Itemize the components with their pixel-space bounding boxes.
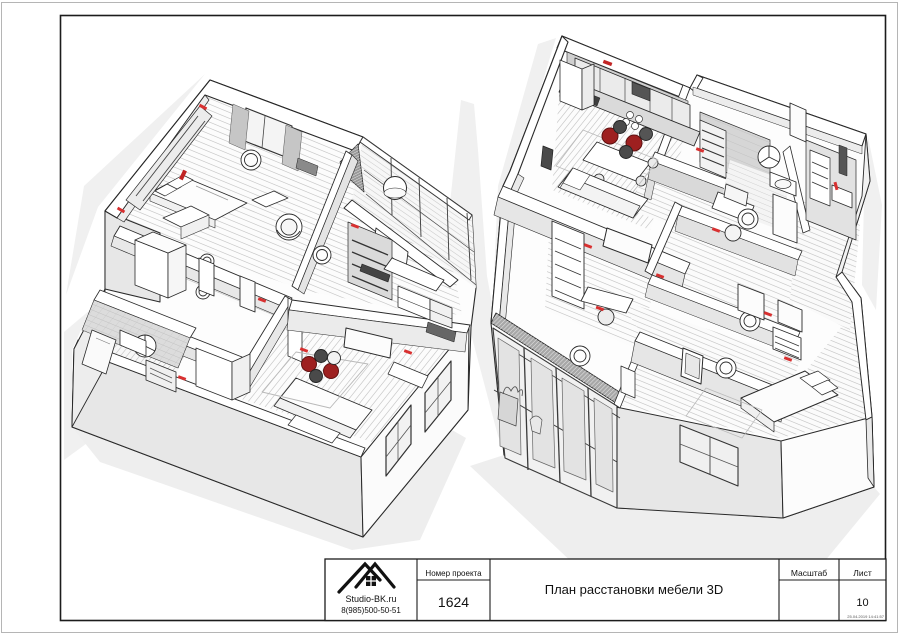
- svg-text:Масштаб: Масштаб: [791, 568, 827, 578]
- svg-text:Лист: Лист: [853, 568, 872, 578]
- svg-text:10: 10: [856, 597, 868, 609]
- svg-text:25.04.2019 14:41:57: 25.04.2019 14:41:57: [847, 614, 884, 619]
- svg-text:1624: 1624: [438, 594, 469, 610]
- svg-text:Studio-BK.ru: Studio-BK.ru: [345, 594, 396, 604]
- svg-text:План расстановки мебели 3D: План расстановки мебели 3D: [545, 582, 724, 597]
- svg-text:8(985)500-50-51: 8(985)500-50-51: [341, 606, 401, 615]
- svg-text:Номер проекта: Номер проекта: [425, 569, 482, 578]
